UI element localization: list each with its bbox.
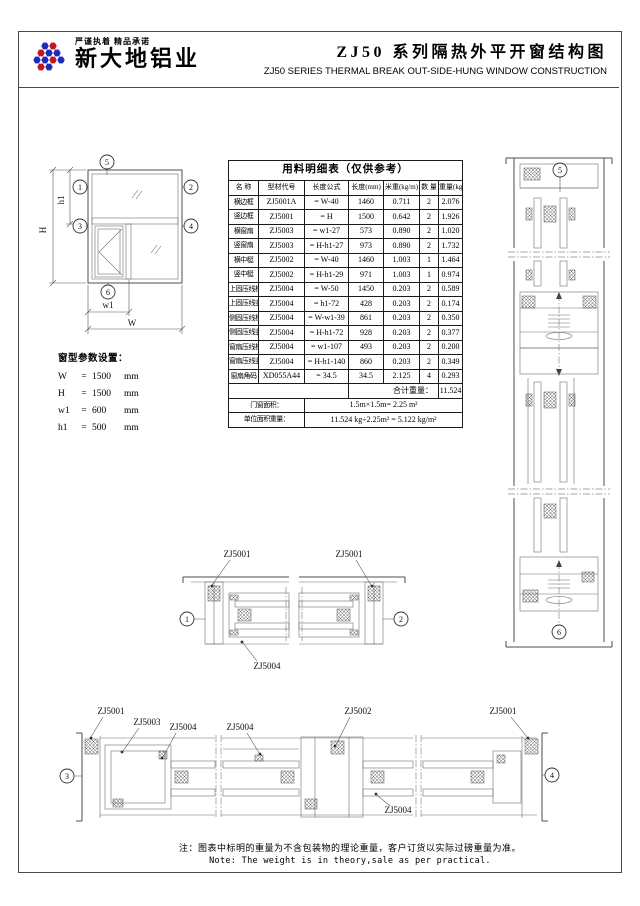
material-cell: = W-40: [305, 195, 349, 210]
material-row: 窗扇角码XD055A44= 34.534.52.12540.293: [229, 369, 463, 384]
material-row: 上固压线竖ZJ5004= h1-724280.20320.174: [229, 297, 463, 312]
glass-mark-right: [151, 245, 161, 254]
balloon-4-section: 4: [545, 768, 559, 782]
param-name: W: [58, 372, 76, 382]
title-block: 严谨执着 精品承诺 新大地铝业 ZJ50 系列隔热外平开窗结构图 ZJ50 SE…: [19, 32, 619, 88]
material-cell: 971: [349, 268, 384, 283]
material-cell: 0.203: [384, 340, 420, 355]
material-cell: ZJ5004: [259, 282, 305, 297]
material-row: 竖窗扇ZJ5003= H-h1-279730.89021.732: [229, 239, 463, 254]
profile-label: ZJ5001: [98, 706, 125, 716]
material-cell: = W-40: [305, 253, 349, 268]
material-cell: 横中梃: [229, 253, 259, 268]
brand-block: 严谨执着 精品承诺 新大地铝业: [75, 36, 200, 71]
material-cell: 2: [420, 355, 439, 370]
profile-label: ZJ5004: [254, 661, 282, 671]
col-header: 型材代号: [259, 181, 305, 196]
break-line: [508, 489, 610, 494]
glass-mark-top: [132, 190, 142, 199]
material-row: 竖边框ZJ5001= H15000.64221.926: [229, 210, 463, 225]
col-header: 名 称: [229, 181, 259, 196]
table-header-row: 名 称 型材代号 长度公式 长度(mm) 米重(kg/m) 数 量 重量(kg): [229, 181, 463, 196]
material-table-wrap: 用料明细表（仅供参考） 名 称 型材代号 长度公式 长度(mm) 米重(kg/m…: [228, 160, 463, 428]
material-cell: 1450: [349, 282, 384, 297]
area-value: 1.5m×1.5m= 2.25 m²: [305, 398, 463, 413]
transom-section: [508, 261, 610, 494]
balloon-5-section: 5: [553, 163, 567, 177]
svg-text:2: 2: [399, 615, 403, 624]
material-cell: 2: [420, 224, 439, 239]
material-cell: 0.711: [384, 195, 420, 210]
area-label: 门窗面积：: [229, 398, 305, 413]
material-cell: 928: [349, 326, 384, 341]
profile-label: ZJ5004: [227, 722, 255, 732]
material-table: 用料明细表（仅供参考） 名 称 型材代号 长度公式 长度(mm) 米重(kg/m…: [228, 160, 463, 428]
screw-symbol: [546, 292, 572, 376]
param-name: w1: [58, 406, 76, 416]
material-cell: = H: [305, 210, 349, 225]
param-value: 600: [92, 406, 124, 416]
unit-weight-value: 11.524 kg÷2.25m² = 5.122 kg/m²: [305, 413, 463, 428]
window-frame: [88, 170, 182, 283]
material-cell: 0.203: [384, 355, 420, 370]
param-name: h1: [58, 423, 76, 433]
bottom-horizontal-section: ZJ5001 ZJ5003 ZJ5004 ZJ5004 ZJ5002 ZJ500…: [55, 703, 625, 841]
material-row: 侧固压线竖ZJ5004= H-h1-729280.20320.377: [229, 326, 463, 341]
material-cell: ZJ5004: [259, 340, 305, 355]
material-cell: 1.003: [384, 268, 420, 283]
parameter-row: H = 1500 mm: [58, 385, 188, 402]
total-empty-cell: [229, 384, 349, 399]
material-row: 横边框ZJ5001A= W-4014600.71122.076: [229, 195, 463, 210]
col-header: 长度(mm): [349, 181, 384, 196]
material-cell: 1.732: [439, 239, 463, 254]
material-cell: 0.203: [384, 282, 420, 297]
material-cell: 1460: [349, 253, 384, 268]
material-cell: ZJ5004: [259, 297, 305, 312]
svg-text:6: 6: [557, 628, 561, 637]
window-elevation-diagram: H h1 w1 W 5 1 2 3 4 6: [28, 138, 228, 356]
material-cell: 2: [420, 282, 439, 297]
company-logo: [29, 40, 73, 78]
svg-text:1: 1: [185, 615, 189, 624]
material-cell: 横窗扇: [229, 224, 259, 239]
total-row: 合计重量： 11.524: [229, 384, 463, 399]
material-cell: 1460: [349, 195, 384, 210]
balloon-1: 1: [73, 180, 87, 194]
svg-text:3: 3: [65, 772, 69, 781]
param-eq: =: [76, 372, 92, 382]
table-title-row: 用料明细表（仅供参考）: [229, 161, 463, 181]
param-value: 1500: [92, 389, 124, 399]
material-row: 横中梃ZJ5002= W-4014601.00311.464: [229, 253, 463, 268]
total-value: 11.524: [439, 384, 463, 399]
material-cell: 2: [420, 210, 439, 225]
material-cell: 973: [349, 239, 384, 254]
balloon-3: 3: [73, 219, 87, 233]
parameter-row: h1 = 500 mm: [58, 419, 188, 436]
material-cell: XD055A44: [259, 369, 305, 384]
col-header: 重量(kg): [439, 181, 463, 196]
balloon-2-section: 2: [394, 612, 408, 626]
drawing-titles: ZJ50 系列隔热外平开窗结构图 ZJ50 SERIES THERMAL BRE…: [264, 38, 607, 77]
material-cell: 1: [420, 268, 439, 283]
material-cell: 2.076: [439, 195, 463, 210]
material-cell: 573: [349, 224, 384, 239]
material-cell: ZJ5004: [259, 355, 305, 370]
material-cell: 860: [349, 355, 384, 370]
section-2-profile: [299, 577, 405, 644]
balloon-3-section: 3: [60, 769, 74, 783]
param-eq: =: [76, 423, 92, 433]
balloon-4: 4: [184, 219, 198, 233]
unit-weight-row: 单位面积重量： 11.524 kg÷2.25m² = 5.122 kg/m²: [229, 413, 463, 428]
material-cell: 1.003: [384, 253, 420, 268]
material-cell: 0.293: [439, 369, 463, 384]
material-cell: ZJ5001: [259, 210, 305, 225]
material-cell: = H-h1-72: [305, 326, 349, 341]
bottom-section-profiles: [76, 733, 548, 821]
material-cell: 0.203: [384, 311, 420, 326]
dim-h1-lines: [66, 170, 86, 224]
logo-hex-cluster: [33, 42, 65, 70]
param-value: 500: [92, 423, 124, 433]
material-cell: 1.464: [439, 253, 463, 268]
material-cell: 上固压线竖: [229, 297, 259, 312]
material-cell: ZJ5003: [259, 239, 305, 254]
window-parameters: 窗型参数设置： W = 1500 mm H = 1500 mm w1 = 600…: [58, 350, 188, 436]
casement-opening-symbol: [99, 229, 122, 275]
head-section: 5: [506, 158, 612, 257]
material-cell: 上固压线横: [229, 282, 259, 297]
profile-label: ZJ5004: [385, 805, 413, 815]
profile-label: ZJ5001: [224, 549, 251, 559]
material-cell: 竖边框: [229, 210, 259, 225]
break-line: [416, 735, 421, 819]
material-cell: 1.020: [439, 224, 463, 239]
svg-text:5: 5: [105, 158, 109, 167]
mid-horizontal-sections: ZJ5001 ZJ5001 ZJ5004 1 2: [175, 545, 435, 675]
sill-section: 6: [506, 498, 612, 647]
param-eq: =: [76, 389, 92, 399]
profile-label: ZJ5003: [134, 717, 162, 727]
spacer-hatch: [544, 206, 556, 222]
material-cell: 493: [349, 340, 384, 355]
company-name: 新大地铝业: [75, 47, 200, 71]
material-cell: 窗扇压线竖: [229, 355, 259, 370]
material-cell: 428: [349, 297, 384, 312]
material-cell: = H-h1-27: [305, 239, 349, 254]
col-header: 米重(kg/m): [384, 181, 420, 196]
material-cell: 窗扇角码: [229, 369, 259, 384]
material-cell: 861: [349, 311, 384, 326]
total-label: 合计重量：: [349, 384, 439, 399]
material-row: 横窗扇ZJ5003= w1-275730.89021.020: [229, 224, 463, 239]
material-cell: 0.377: [439, 326, 463, 341]
material-cell: 竖中梃: [229, 268, 259, 283]
table-title: 用料明细表（仅供参考）: [229, 161, 463, 181]
material-cell: = w1-27: [305, 224, 349, 239]
material-cell: 4: [420, 369, 439, 384]
material-cell: 1: [420, 253, 439, 268]
material-cell: 0.589: [439, 282, 463, 297]
material-cell: 0.349: [439, 355, 463, 370]
material-cell: 34.5: [349, 369, 384, 384]
profile-label: ZJ5001: [336, 549, 363, 559]
material-cell: = w1-107: [305, 340, 349, 355]
balloon-6-section: 6: [552, 625, 566, 639]
param-name: H: [58, 389, 76, 399]
profile-label: ZJ5004: [170, 722, 198, 732]
material-cell: 0.200: [439, 340, 463, 355]
material-cell: ZJ5002: [259, 268, 305, 283]
svg-text:2: 2: [189, 183, 193, 192]
param-unit: mm: [124, 423, 146, 433]
drawing-title-cn: ZJ50 系列隔热外平开窗结构图: [264, 38, 607, 62]
material-cell: 横边框: [229, 195, 259, 210]
material-cell: 1.926: [439, 210, 463, 225]
material-row: 窗扇压线横ZJ5004= w1-1074930.20320.200: [229, 340, 463, 355]
material-cell: ZJ5004: [259, 311, 305, 326]
vertical-section-drawing: 5: [498, 142, 620, 657]
material-cell: 0.642: [384, 210, 420, 225]
drawing-sheet: 严谨执着 精品承诺 新大地铝业 ZJ50 系列隔热外平开窗结构图 ZJ50 SE…: [0, 0, 640, 906]
material-cell: 2: [420, 326, 439, 341]
material-cell: 0.350: [439, 311, 463, 326]
drawing-title-en: ZJ50 SERIES THERMAL BREAK OUT-SIDE-HUNG …: [264, 66, 607, 77]
material-cell: 2: [420, 297, 439, 312]
material-cell: ZJ5004: [259, 326, 305, 341]
balloon-6: 6: [101, 285, 115, 299]
break-line: [508, 252, 610, 257]
material-cell: 2: [420, 311, 439, 326]
material-cell: 竖窗扇: [229, 239, 259, 254]
unit-weight-label: 单位面积重量：: [229, 413, 305, 428]
material-cell: 2: [420, 340, 439, 355]
material-cell: 1500: [349, 210, 384, 225]
note-cn: 注：图表中标明的重量为不含包装物的理论重量，客户订货以实际过磅重量为准。: [130, 841, 570, 854]
parameters-title: 窗型参数设置：: [58, 350, 188, 364]
profile-label: ZJ5001: [490, 706, 517, 716]
param-unit: mm: [124, 406, 146, 416]
gasket-hatch: [524, 168, 540, 180]
dim-w1-label: w1: [103, 300, 114, 310]
material-cell: 0.174: [439, 297, 463, 312]
material-cell: 0.203: [384, 297, 420, 312]
material-row: 侧固压线横ZJ5004= W-w1-398610.20320.350: [229, 311, 463, 326]
material-cell: 0.890: [384, 239, 420, 254]
material-cell: 2: [420, 195, 439, 210]
material-cell: 0.974: [439, 268, 463, 283]
material-cell: = W-w1-39: [305, 311, 349, 326]
material-row: 上固压线横ZJ5004= W-5014500.20320.589: [229, 282, 463, 297]
material-row: 窗扇压线竖ZJ5004= H-h1-1408600.20320.349: [229, 355, 463, 370]
break-line: [216, 735, 221, 819]
area-row: 门窗面积： 1.5m×1.5m= 2.25 m²: [229, 398, 463, 413]
screw-symbol: [546, 560, 572, 623]
parameter-row: w1 = 600 mm: [58, 402, 188, 419]
balloon-5: 5: [100, 155, 114, 169]
material-cell: 0.890: [384, 224, 420, 239]
balloon-2: 2: [184, 180, 198, 194]
material-cell: 0.203: [384, 326, 420, 341]
param-eq: =: [76, 406, 92, 416]
dim-W-label: W: [128, 318, 137, 328]
material-cell: 2: [420, 239, 439, 254]
profile-label: ZJ5002: [345, 706, 372, 716]
svg-text:1: 1: [78, 183, 82, 192]
svg-text:3: 3: [78, 222, 82, 231]
material-cell: ZJ5003: [259, 224, 305, 239]
material-cell: 2.125: [384, 369, 420, 384]
svg-text:6: 6: [106, 288, 110, 297]
svg-text:4: 4: [550, 771, 554, 780]
col-header: 数 量: [420, 181, 439, 196]
material-cell: ZJ5002: [259, 253, 305, 268]
parameter-row: W = 1500 mm: [58, 368, 188, 385]
svg-text:5: 5: [558, 166, 562, 175]
material-cell: 窗扇压线横: [229, 340, 259, 355]
material-cell: = W-50: [305, 282, 349, 297]
material-cell: 侧固压线横: [229, 311, 259, 326]
footer-note: 注：图表中标明的重量为不含包装物的理论重量，客户订货以实际过磅重量为准。 Not…: [130, 841, 570, 866]
material-cell: = 34.5: [305, 369, 349, 384]
dim-h1-label: h1: [56, 196, 66, 205]
param-value: 1500: [92, 372, 124, 382]
param-unit: mm: [124, 372, 146, 382]
material-cell: = h1-72: [305, 297, 349, 312]
material-cell: 侧固压线竖: [229, 326, 259, 341]
col-header: 长度公式: [305, 181, 349, 196]
svg-text:4: 4: [189, 222, 193, 231]
dim-H-label: H: [38, 226, 48, 233]
material-cell: = H-h1-29: [305, 268, 349, 283]
section-1-profile: [183, 577, 289, 644]
bottom-section-labels: ZJ5001 ZJ5003 ZJ5004 ZJ5004 ZJ5002 ZJ500…: [90, 706, 530, 815]
material-cell: = H-h1-140: [305, 355, 349, 370]
material-cell: ZJ5001A: [259, 195, 305, 210]
note-en: Note: The weight is in theory,sale as pe…: [130, 856, 570, 866]
balloon-1-section: 1: [180, 612, 194, 626]
param-unit: mm: [124, 389, 146, 399]
material-row: 竖中梃ZJ5002= H-h1-299711.00310.974: [229, 268, 463, 283]
dimensions: H h1 w1 W: [38, 167, 185, 334]
